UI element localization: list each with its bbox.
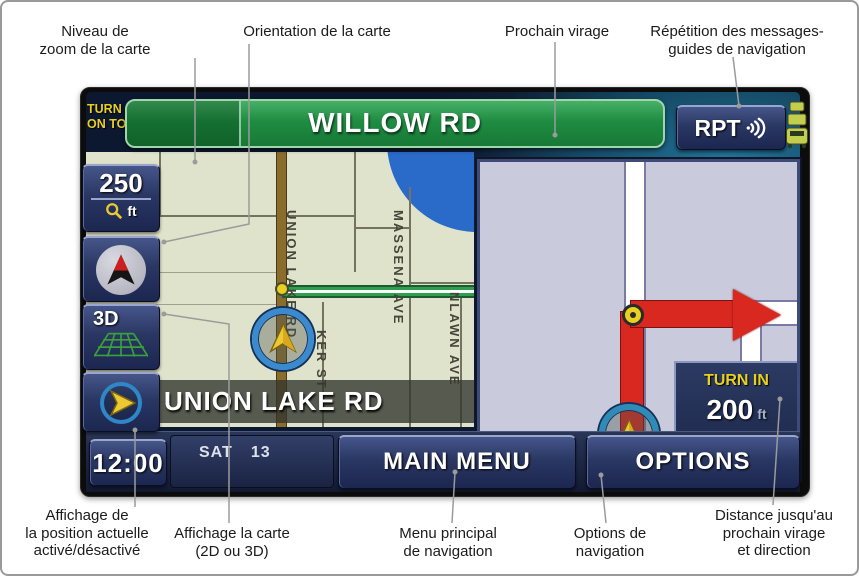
day-label: SAT bbox=[199, 444, 233, 461]
callout-repeat-label: Répétition des messages- guides de navig… bbox=[614, 23, 859, 58]
clock-display: 12:00 bbox=[89, 439, 167, 486]
vehicle-arrow-icon bbox=[264, 320, 302, 358]
grid-3d-icon bbox=[94, 330, 148, 358]
turn-distance: 200ft bbox=[676, 394, 797, 426]
map-view-mode-button[interactable]: 3D bbox=[82, 304, 160, 370]
magnifier-icon bbox=[105, 202, 123, 220]
repeat-guidance-button[interactable]: RPT bbox=[676, 105, 786, 150]
callout-orientation-label: Orientation de la carte bbox=[202, 23, 432, 41]
map-orientation-button[interactable] bbox=[82, 236, 160, 302]
sound-waves-icon bbox=[746, 114, 768, 142]
vehicle-marker bbox=[252, 308, 314, 370]
car-stack-icon bbox=[786, 101, 808, 151]
route-line bbox=[282, 285, 474, 298]
current-street-name: UNION LAKE RD bbox=[164, 386, 384, 416]
callout-zoom-level-label: Niveau de zoom de la carte bbox=[10, 23, 180, 58]
rpt-label: RPT bbox=[695, 115, 741, 142]
date-label: 13 bbox=[251, 444, 271, 461]
north-arrow-icon bbox=[101, 250, 141, 290]
turn-in-label: TURN IN bbox=[676, 372, 797, 390]
position-arrow-icon bbox=[97, 379, 145, 427]
callout-distance-label: Distance jusqu'au prochain virage et dir… bbox=[690, 507, 858, 560]
date-display: SAT13 bbox=[170, 435, 334, 488]
callout-main-menu-label: Menu principal de navigation bbox=[366, 525, 530, 560]
manual-figure: TURN ON TO WILLOW RD RPT bbox=[0, 0, 859, 576]
callout-map-display-label: Affichage la carte (2D ou 3D) bbox=[150, 525, 314, 560]
road-line bbox=[409, 282, 474, 284]
compass-circle bbox=[96, 245, 146, 295]
next-street-name: WILLOW RD bbox=[127, 101, 663, 145]
status-bar: 12:00 SAT13 MAIN MENU OPTIONS bbox=[86, 431, 800, 492]
callout-position-label: Affichage de la position actuelle activé… bbox=[2, 507, 172, 560]
turn-route-arrow bbox=[631, 301, 735, 327]
zoom-level-button[interactable]: 250 ft bbox=[82, 164, 160, 232]
callout-options-label: Options de navigation bbox=[530, 525, 690, 560]
current-position-button[interactable] bbox=[82, 372, 160, 432]
turn-point-dot bbox=[622, 304, 644, 326]
options-button[interactable]: OPTIONS bbox=[586, 435, 800, 489]
turn-distance-value: 200 bbox=[706, 394, 753, 425]
turn-distance-unit: ft bbox=[757, 406, 766, 422]
road-line bbox=[354, 152, 356, 272]
zoom-level-value: 250 bbox=[91, 168, 151, 200]
zoom-level-unit: ft bbox=[127, 203, 136, 219]
view-mode-label: 3D bbox=[93, 309, 159, 329]
main-menu-button[interactable]: MAIN MENU bbox=[338, 435, 576, 489]
turn-route-arrowhead bbox=[733, 289, 781, 341]
map-street-label: MASSENA AVE bbox=[391, 210, 406, 325]
next-street-banner: WILLOW RD bbox=[125, 99, 665, 148]
map-street-label: NLAWN AVE bbox=[447, 292, 462, 387]
